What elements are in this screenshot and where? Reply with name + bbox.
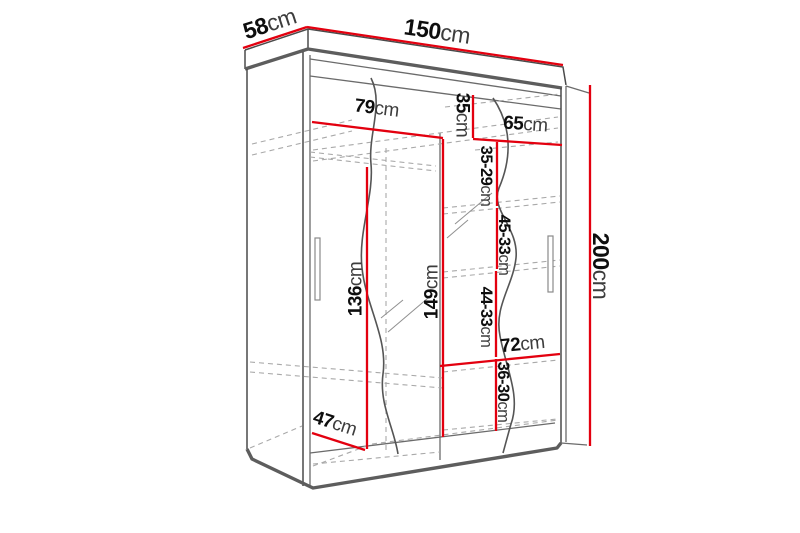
- dimension-label-35-29: 35-29cm: [477, 146, 495, 207]
- dimension-label-35: 35cm: [451, 93, 472, 137]
- dimension-label-136: 136cm: [346, 262, 367, 317]
- hidden-edge: [252, 131, 352, 155]
- dimension-label-72: 72cm: [499, 332, 545, 357]
- wardrobe-diagram: 58cm 150cm 200cm 79cm 35cm 65cm 35-29cm …: [0, 0, 800, 533]
- base-front-edge: [247, 443, 561, 488]
- dimension-label-45-33: 45-33cm: [495, 215, 513, 276]
- mirror-hatch: [381, 300, 403, 318]
- wardrobe-outline: [245, 29, 589, 488]
- dimension-label-65: 65cm: [502, 113, 548, 137]
- base-right-edge: [561, 443, 587, 445]
- right-shelf-edge: [443, 196, 560, 208]
- dimension-line-65: [473, 139, 562, 145]
- hidden-edge: [250, 362, 443, 378]
- dimension-label-height-200: 200cm: [588, 233, 614, 300]
- carcass-top-edge: [310, 59, 561, 96]
- dimension-label-149: 149cm: [422, 265, 443, 320]
- dimension-label-44-33: 44-33cm: [477, 287, 495, 348]
- hidden-edge: [252, 120, 352, 144]
- left-door-handle: [315, 238, 320, 300]
- dimension-label-36-30: 36-30cm: [494, 362, 512, 423]
- hidden-edge: [250, 426, 302, 448]
- hidden-edge: [250, 372, 443, 388]
- right-door-handle: [548, 236, 553, 292]
- hidden-bottom-edge: [313, 452, 440, 464]
- wardrobe-diagram-canvas: 58cm 150cm 200cm 79cm 35cm 65cm 35-29cm …: [0, 0, 800, 533]
- right-panel-top-edge: [566, 86, 589, 93]
- dimension-label-depth-58: 58cm: [240, 3, 300, 45]
- mirror-hatch: [447, 220, 468, 238]
- dimension-label-79: 79cm: [353, 95, 400, 121]
- cornice-front-edge: [245, 49, 562, 88]
